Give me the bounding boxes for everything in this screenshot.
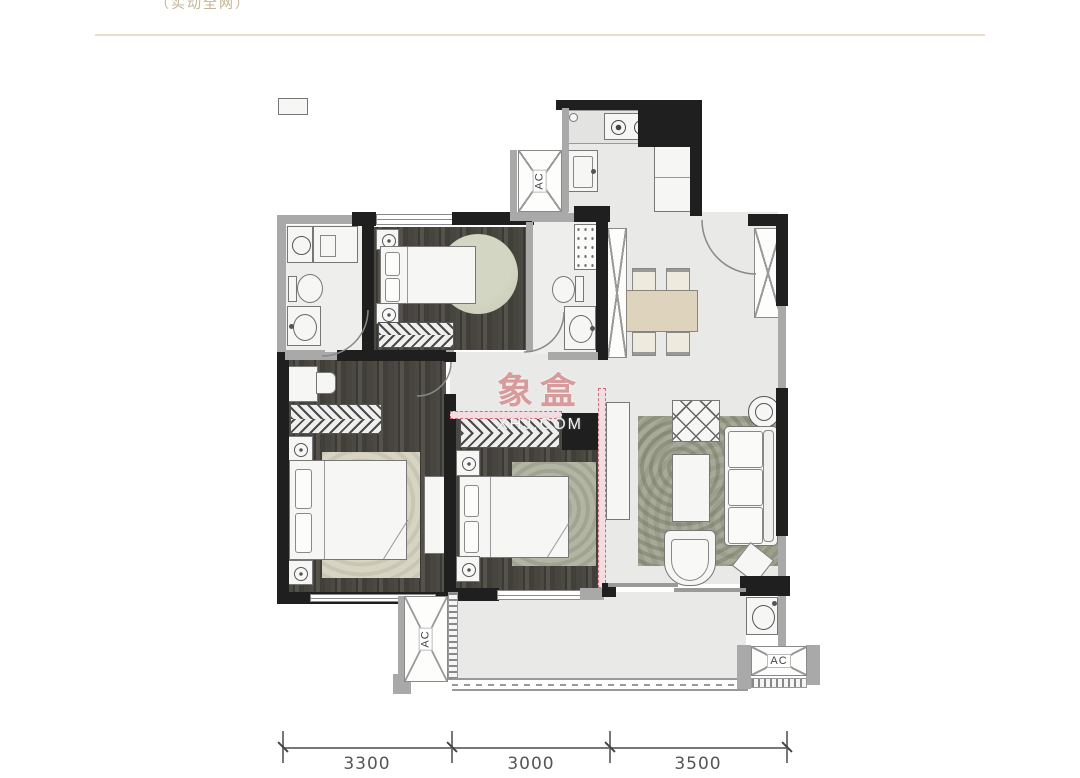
dining-chair <box>666 268 690 292</box>
dining-chair <box>632 332 656 356</box>
balcony-sliding-door <box>608 583 678 587</box>
wall <box>776 214 788 306</box>
dining-chair <box>632 268 656 292</box>
pillow <box>464 521 479 553</box>
bed-line <box>324 461 325 559</box>
sink-basin <box>573 156 593 188</box>
bedroom3-window <box>497 590 583 600</box>
wall <box>740 576 790 596</box>
blanket-fold <box>547 523 569 557</box>
balcony-floor <box>456 592 746 680</box>
dining-table <box>626 290 698 332</box>
sofa-back <box>763 430 774 542</box>
burner-icon <box>611 120 626 135</box>
window-wall <box>526 222 533 352</box>
kitchen-sink <box>568 150 598 192</box>
master-desk <box>288 366 318 402</box>
dining-chair <box>666 332 690 356</box>
bedroom2-wardrobe <box>378 322 454 348</box>
window-wall <box>277 218 286 352</box>
faucet-icon <box>591 169 596 174</box>
window-wall <box>548 352 598 360</box>
window-wall <box>737 645 751 689</box>
wall <box>455 588 499 601</box>
balcony-sliding-door <box>674 588 746 592</box>
toilet-bowl <box>552 276 575 303</box>
nightstand <box>287 560 313 585</box>
washer-drum-icon <box>292 236 311 255</box>
ottoman <box>672 400 720 442</box>
window-wall <box>580 588 604 600</box>
ac-label: AC <box>419 627 433 650</box>
window-wall <box>277 215 363 224</box>
window-wall <box>562 108 569 212</box>
basin-icon <box>293 314 317 341</box>
heater-drum-icon <box>752 605 775 630</box>
coffee-table <box>672 454 710 522</box>
faucet-icon <box>590 326 595 331</box>
pillow <box>385 252 400 276</box>
balcony-railing <box>452 678 748 691</box>
desk-chair <box>316 372 336 394</box>
armchair-seat <box>671 539 709 581</box>
sofa-cushion <box>728 507 763 544</box>
master-bed <box>289 460 407 560</box>
kitchen-counter-right <box>654 142 692 212</box>
pillow <box>464 485 479 517</box>
window-wall <box>285 352 337 360</box>
watermark-subtitle: XHJ.COM <box>460 416 620 434</box>
valve-icon <box>772 601 777 606</box>
pillow <box>295 513 312 553</box>
master-bench <box>424 476 446 554</box>
washing-machine <box>287 226 313 263</box>
bed-line <box>490 477 491 557</box>
kitchen-drain-icon <box>569 113 578 122</box>
utility-shaft <box>278 98 308 115</box>
master-wardrobe <box>290 404 382 434</box>
dimension-value: 3300 <box>327 754 407 774</box>
window-wall <box>778 536 786 578</box>
bathroom1-counter <box>313 226 358 263</box>
bedroom3-bed <box>459 476 569 558</box>
pillow <box>295 469 312 509</box>
wall <box>337 350 446 361</box>
watermark: 象盒 XHJ.COM <box>460 362 620 434</box>
window-wall <box>778 306 786 388</box>
window-wall <box>778 596 786 646</box>
bed-line <box>407 247 408 303</box>
header-divider-line <box>95 34 985 36</box>
toilet-bowl <box>297 274 323 303</box>
ac-platform-kitchen: AC <box>518 150 562 212</box>
toilet-tank <box>288 276 297 302</box>
pillow <box>385 278 400 302</box>
balcony-partition-hatch <box>448 592 458 680</box>
armchair <box>664 530 716 586</box>
wall <box>362 218 374 354</box>
shower <box>574 224 598 270</box>
window-wall <box>806 645 820 685</box>
dimension-line <box>283 747 787 749</box>
floor-plan-page: （实动全网） <box>0 0 1080 778</box>
table-ring-icon <box>755 403 773 421</box>
bathroom1-sink <box>287 306 321 346</box>
ac-platform-rear: AC <box>751 646 807 676</box>
counter-sink <box>320 235 336 257</box>
blanket-fold <box>383 520 408 560</box>
water-heater <box>746 597 778 635</box>
wall <box>556 100 648 110</box>
storage-cabinet <box>607 228 627 358</box>
wall <box>277 352 289 598</box>
window-wall <box>510 212 568 221</box>
nightstand <box>456 450 480 476</box>
nightstand <box>456 556 480 582</box>
faucet-icon <box>289 324 294 329</box>
sofa-cushion <box>728 431 763 468</box>
sofa <box>724 426 778 546</box>
dimension-value: 3000 <box>491 754 571 774</box>
wall <box>776 388 788 536</box>
window-wall <box>510 150 517 212</box>
watermark-title: 象盒 <box>460 362 620 414</box>
wall <box>596 218 608 360</box>
toilet-tank <box>575 276 584 302</box>
bedroom2-bed <box>380 246 476 304</box>
nightstand <box>376 303 399 324</box>
wall <box>444 394 456 596</box>
sofa-cushion <box>728 469 763 506</box>
header-partial-text: （实动全网） <box>155 0 251 13</box>
nightstand <box>287 436 313 461</box>
bedroom2-window <box>376 214 454 225</box>
ac-rear-railing-hatch <box>751 678 807 688</box>
ac-platform-balcony: AC <box>404 596 448 682</box>
ac-label: AC <box>533 169 547 192</box>
ac-label: AC <box>767 654 790 668</box>
bathroom2-sink <box>564 306 596 350</box>
wall <box>444 352 456 362</box>
dimension-value: 3500 <box>658 754 738 774</box>
wall <box>690 104 702 216</box>
